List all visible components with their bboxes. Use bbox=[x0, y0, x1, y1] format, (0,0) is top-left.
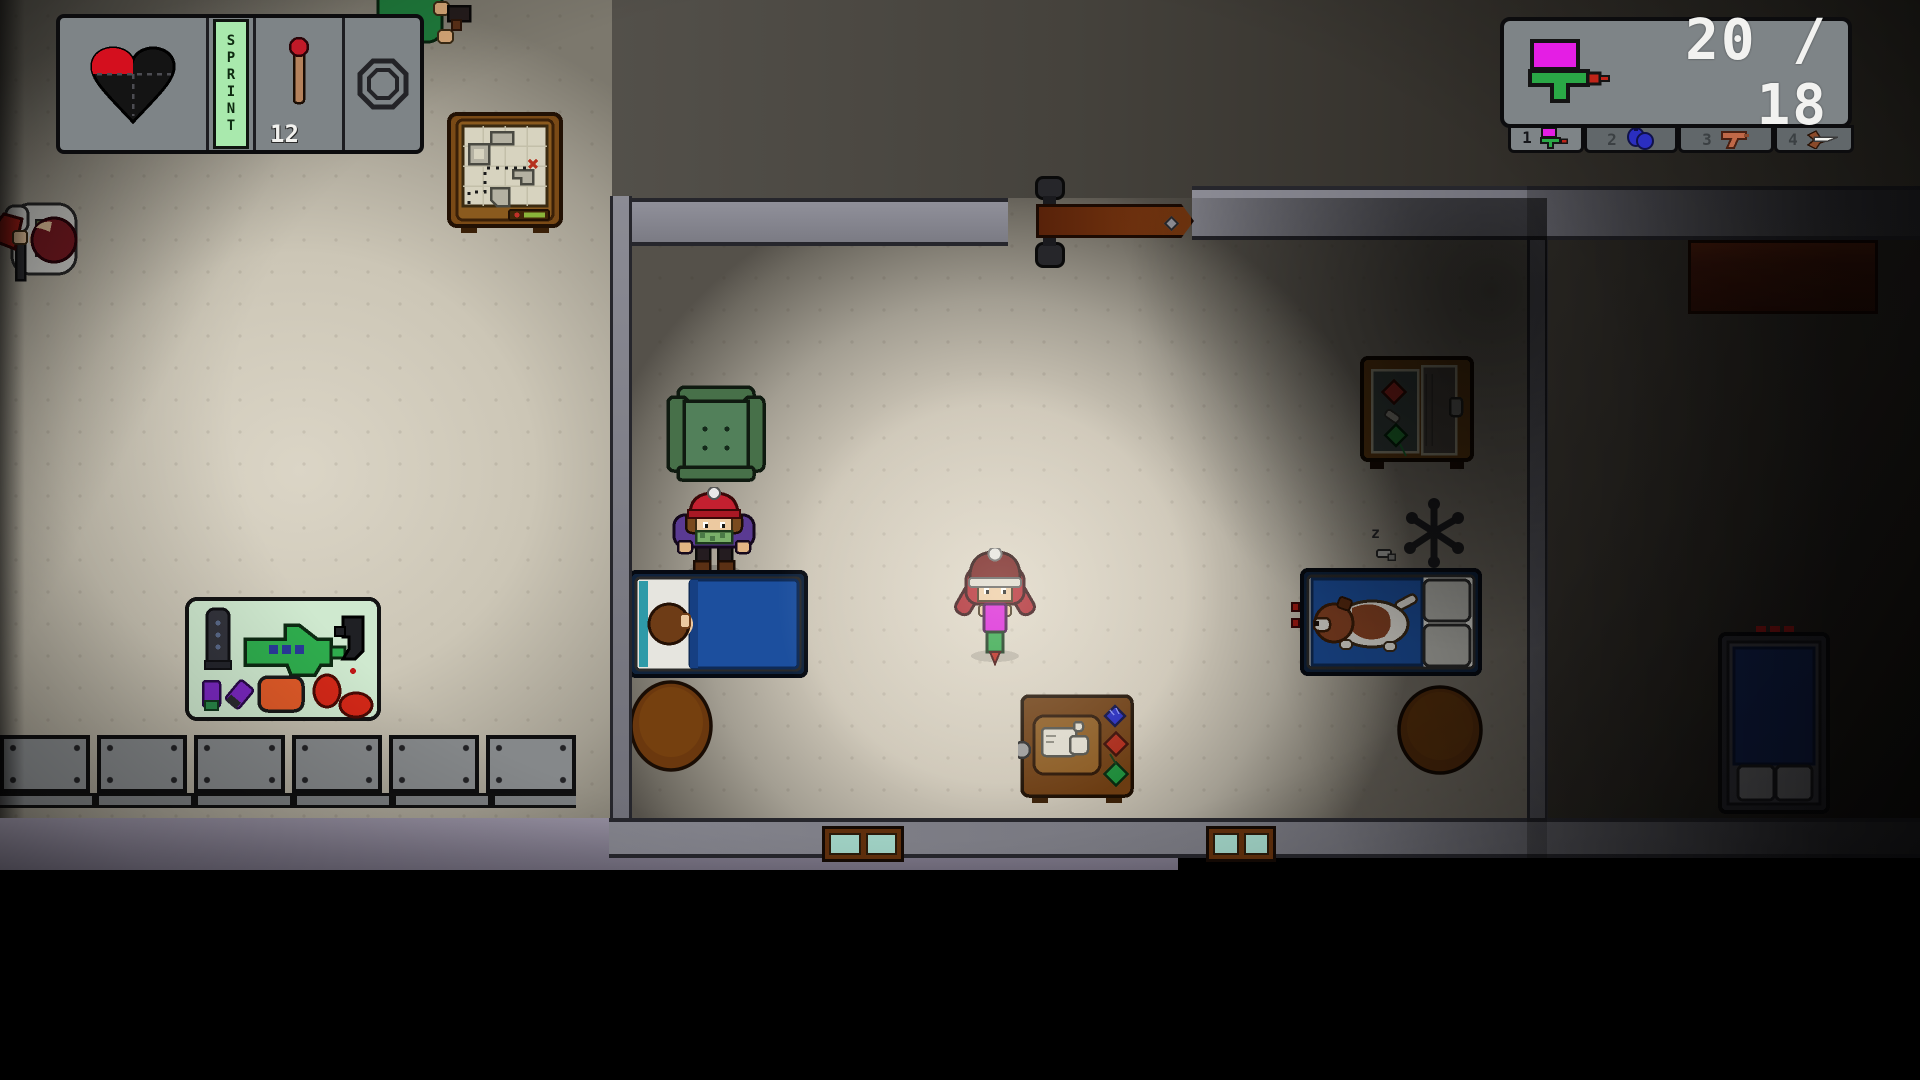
fence-panel bbox=[486, 735, 576, 793]
metal-fence bbox=[0, 735, 576, 793]
kite-items bbox=[1105, 706, 1128, 785]
window-pane bbox=[1244, 833, 1270, 855]
black-outside-bottom-right bbox=[1178, 858, 1920, 878]
sewing-machine-item bbox=[1042, 722, 1088, 756]
window[interactable] bbox=[1206, 826, 1276, 862]
fence-panel bbox=[0, 735, 90, 793]
game-scene: z z bbox=[0, 0, 1920, 1080]
ring-icon bbox=[357, 58, 409, 110]
tv-map[interactable] bbox=[447, 112, 563, 235]
fence-panel bbox=[194, 735, 284, 793]
ammo-panel: 20 / 18 bbox=[1500, 17, 1852, 128]
status-panel: SPRINT 12 bbox=[56, 14, 424, 154]
sprint-bar: SPRINT bbox=[213, 19, 249, 149]
ammo-count: 20 / 18 bbox=[1638, 8, 1828, 138]
sleep-z-small: z bbox=[1371, 526, 1380, 541]
window-pane bbox=[1213, 833, 1239, 855]
watergun-small-icon bbox=[1540, 127, 1570, 149]
round-table bbox=[1396, 684, 1484, 776]
fence-panel bbox=[292, 735, 382, 793]
npc-axe[interactable] bbox=[0, 198, 84, 288]
gear-cell bbox=[342, 18, 420, 150]
fence-panel bbox=[97, 735, 187, 793]
sprint-label: SPRINT bbox=[223, 33, 239, 135]
match-icon bbox=[284, 35, 314, 111]
sprint-cell: SPRINT bbox=[206, 18, 253, 150]
ceiling-fan bbox=[1400, 496, 1468, 572]
fence-rail bbox=[0, 793, 576, 808]
toy-on-floor[interactable] bbox=[1376, 546, 1398, 562]
craft-desk bbox=[1018, 692, 1138, 806]
green-armchair bbox=[666, 385, 766, 483]
dark-counter bbox=[1688, 240, 1878, 314]
match-count: 12 bbox=[270, 120, 299, 148]
door-knob bbox=[1164, 216, 1180, 232]
wall-right-vertical bbox=[1527, 240, 1548, 858]
door-open[interactable] bbox=[1036, 204, 1194, 238]
display-cabinet[interactable] bbox=[1358, 354, 1476, 472]
match-cell: 12 bbox=[253, 18, 342, 150]
water-balloon-item bbox=[340, 693, 372, 717]
black-outside-bottom bbox=[0, 870, 1920, 1080]
wall-left-vertical bbox=[610, 196, 632, 858]
npc-purple-jacket[interactable] bbox=[672, 487, 756, 579]
fence-panel bbox=[389, 735, 479, 793]
dog-sleeping-on-bed[interactable] bbox=[1300, 568, 1482, 676]
window-pane bbox=[829, 833, 861, 855]
round-table bbox=[628, 678, 714, 774]
workbench-table[interactable] bbox=[185, 597, 381, 721]
health-cell bbox=[60, 18, 206, 150]
window-pane bbox=[866, 833, 898, 855]
ammo-magazine-item bbox=[205, 609, 231, 669]
wall-top-left-segment bbox=[612, 198, 1008, 246]
player-character[interactable] bbox=[952, 548, 1038, 666]
wall-top-right-segment bbox=[1192, 186, 1920, 240]
bed-right-room bbox=[1718, 626, 1830, 818]
window[interactable] bbox=[822, 826, 904, 862]
watergun-icon bbox=[1524, 37, 1620, 109]
water-balloon-item bbox=[314, 675, 340, 707]
bed-with-sleeping-kid bbox=[628, 570, 808, 678]
orange-pad-item bbox=[259, 677, 303, 711]
heart-icon bbox=[85, 42, 181, 126]
hotbar-slot-1[interactable]: 1 bbox=[1508, 125, 1584, 153]
